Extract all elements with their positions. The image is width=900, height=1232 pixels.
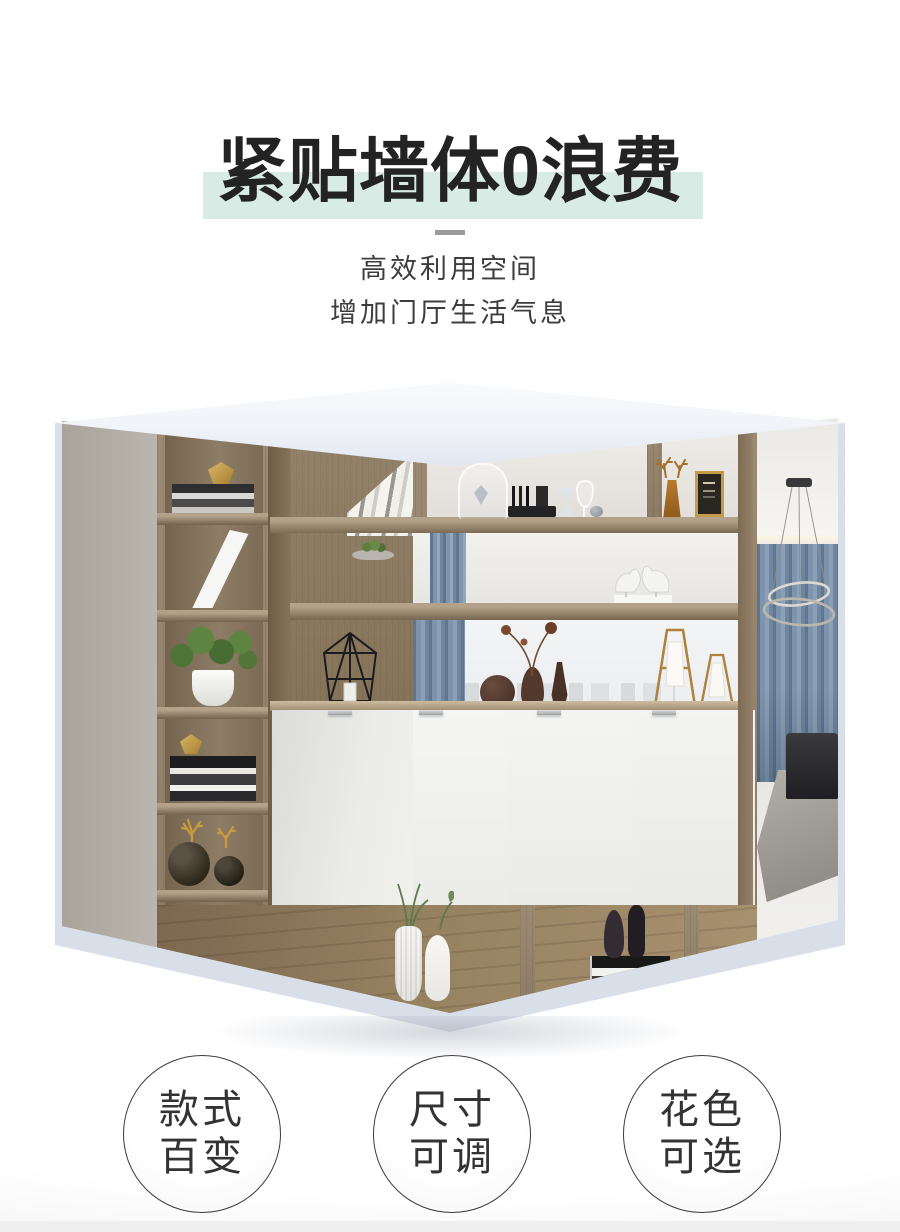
decor-plant-pot bbox=[192, 670, 234, 706]
cabinet-door bbox=[633, 710, 755, 905]
decor-glass-cloche bbox=[458, 463, 508, 519]
feature-badge-size: 尺寸 可调 bbox=[373, 1055, 531, 1213]
cabinet-door bbox=[507, 710, 635, 905]
decor-dark-vase bbox=[628, 905, 645, 958]
decor-ball bbox=[590, 506, 603, 517]
ring-chandelier bbox=[760, 476, 838, 641]
decor-white-vase bbox=[425, 935, 450, 1001]
feature-badge-style: 款式 百变 bbox=[123, 1055, 281, 1213]
feature-label: 款式 bbox=[159, 1087, 245, 1134]
decor-glass-orb bbox=[214, 856, 244, 886]
decor-books bbox=[172, 484, 254, 513]
decor-pen-tray-items bbox=[512, 486, 552, 506]
section-divider-strip bbox=[0, 1221, 900, 1232]
feature-label: 百变 bbox=[159, 1134, 245, 1181]
decor-black-tray bbox=[508, 506, 556, 517]
decor-green-sprigs bbox=[390, 876, 454, 930]
decor-deer-antlers bbox=[654, 456, 690, 478]
feature-label: 花色 bbox=[659, 1087, 745, 1134]
decor-books bbox=[170, 756, 256, 801]
decor-bird-figurines bbox=[606, 556, 678, 598]
feature-label: 尺寸 bbox=[409, 1087, 495, 1134]
page-title: 紧贴墙体0浪费 bbox=[0, 134, 900, 208]
shelf-board bbox=[157, 610, 268, 622]
shelf-board bbox=[270, 517, 738, 533]
subtitle-line-1: 高效利用空间 bbox=[0, 252, 900, 286]
decor-wire-lantern bbox=[320, 631, 380, 710]
decor-white-vase bbox=[395, 926, 422, 1001]
door-handle bbox=[328, 710, 352, 715]
diamond-shadow bbox=[190, 1016, 710, 1062]
shelf-board bbox=[157, 890, 268, 902]
decor-glass-orb bbox=[168, 842, 210, 886]
shelf-board bbox=[290, 603, 738, 620]
title-divider bbox=[435, 230, 465, 235]
decor-dry-branches bbox=[490, 620, 562, 676]
side-wall bbox=[62, 418, 157, 1013]
page: 紧贴墙体0浪费 高效利用空间 增加门厅生活气息 bbox=[0, 0, 900, 1232]
decor-gold-lantern bbox=[653, 628, 697, 710]
feature-badge-color: 花色 可选 bbox=[623, 1055, 781, 1213]
decor-plant-leaves bbox=[165, 622, 259, 676]
decor-succulent bbox=[358, 540, 388, 553]
decor-picture-frame bbox=[695, 471, 724, 517]
feature-label: 可调 bbox=[409, 1134, 495, 1181]
subtitle-line-2: 增加门厅生活气息 bbox=[0, 296, 900, 330]
shelf-board bbox=[157, 513, 268, 525]
hero-image bbox=[62, 418, 838, 1013]
curtain-reflection bbox=[430, 533, 466, 603]
door-handle bbox=[652, 710, 676, 715]
shelf-board bbox=[157, 707, 268, 719]
curtain-sliver bbox=[413, 620, 465, 710]
door-handle bbox=[419, 710, 443, 715]
cabinet-side-frame bbox=[738, 418, 753, 908]
feature-label: 可选 bbox=[659, 1134, 745, 1181]
black-sofa bbox=[786, 733, 838, 799]
door-handle bbox=[537, 710, 561, 715]
